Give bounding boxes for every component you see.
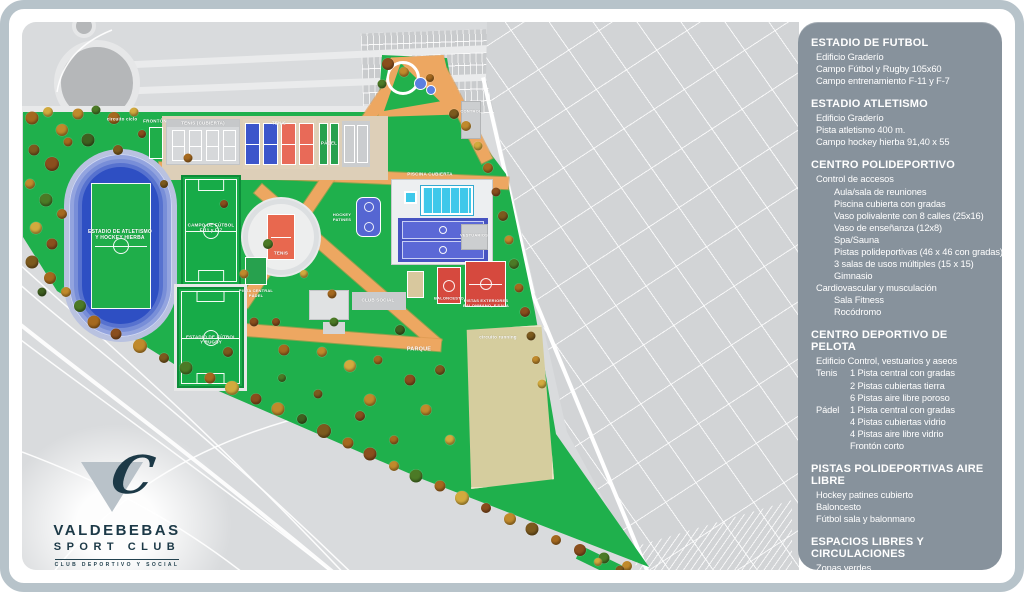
legend-item: Rocódromo — [811, 306, 994, 318]
poster-frame: circuito cicloFRONTÓNTENIS (CUBIERTA)TEN… — [0, 0, 1024, 592]
map-label: ESTADIO DE ATLETISMO Y HOCKEY HIERBA — [88, 229, 152, 241]
logo-c-glyph: C — [107, 450, 158, 502]
legend-item: Vaso de enseñanza (12x8) — [811, 222, 994, 234]
legend-item: Baloncesto — [811, 501, 994, 513]
legend-item: Pista atletismo 400 m. — [811, 124, 994, 136]
legend-section-title: ESPACIOS LIBRES Y CIRCULACIONES — [811, 536, 994, 560]
map-label: CONTROL — [460, 110, 481, 115]
map-label: HOCKEY PATINES — [333, 213, 351, 223]
legend-item: Gimnasio — [811, 270, 994, 282]
map-label: TENIS — [272, 120, 286, 125]
legend-item: Zonas verdes — [811, 562, 994, 570]
map-label: TENIS — [274, 250, 288, 255]
club-logo: C VALDEBEBAS SPORT CLUB CLUB DEPORTIVO Y… — [42, 460, 192, 570]
map-label: circuito running — [479, 334, 516, 339]
legend-item: Frontón corto — [811, 440, 994, 452]
legend-section-title: CENTRO DEPORTIVO DE PELOTA — [811, 329, 994, 353]
legend-item: Edificio Graderío — [811, 112, 994, 124]
legend-item: Vaso polivalente con 8 calles (25x16) — [811, 210, 994, 222]
legend-item: Fútbol sala y balonmano — [811, 513, 994, 525]
legend-item: 2 Pistas cubiertas tierra — [811, 380, 994, 392]
map-label: FRONTÓN — [143, 118, 167, 123]
logo-club-subtitle: SPORT CLUB — [42, 541, 192, 553]
logo-tagline: CLUB DEPORTIVO Y SOCIAL — [55, 559, 180, 568]
legend-item: Campo entrenamiento F-11 y F-7 — [811, 75, 994, 87]
legend-item: Piscina cubierta con gradas — [811, 198, 994, 210]
map-label: PISTAS EXTERIORES BALONMANO, F.SALA — [463, 299, 509, 309]
legend-item: Edificio Graderío — [811, 51, 994, 63]
legend-item: Pádel1 Pista central con gradas — [811, 404, 994, 416]
legend-panel: ESTADIO DE FUTBOLEdificio GraderíoCampo … — [798, 22, 1002, 570]
legend-item: Edificio Control, vestuarios y aseos — [811, 355, 994, 367]
map-label: CAMPO DE FÚTBOL F-11 y F-7 — [188, 223, 235, 234]
map-label: PÁDEL — [321, 140, 337, 145]
poster: circuito cicloFRONTÓNTENIS (CUBIERTA)TEN… — [0, 0, 1024, 592]
map-label: circuito ciclo — [107, 116, 138, 121]
legend-sections: ESTADIO DE FUTBOLEdificio GraderíoCampo … — [811, 37, 994, 570]
legend-item: Campo Fútbol y Rugby 105x60 — [811, 63, 994, 75]
legend-section-title: CENTRO POLIDEPORTIVO — [811, 159, 994, 171]
legend-item: 4 Pistas cubiertas vidrio — [811, 416, 994, 428]
map-label: TENIS (CUBIERTA) — [181, 120, 225, 125]
legend-item: Spa/Sauna — [811, 234, 994, 246]
legend-item: Sala Fitness — [811, 294, 994, 306]
legend-item: Campo hockey hierba 91,40 x 55 — [811, 136, 994, 148]
map-label: PARQUE — [407, 347, 431, 354]
map-label: ESTADIO DE FÚTBOL Y RUGBY — [186, 335, 236, 346]
legend-item: Control de accesos — [811, 173, 994, 185]
legend-item: 6 Pistas aire libre poroso — [811, 392, 994, 404]
map-label: BALONCESTO — [434, 297, 464, 302]
map-label: CLUB SOCIAL — [362, 297, 395, 302]
legend-section-title: PISTAS POLIDEPORTIVAS AIRE LIBRE — [811, 463, 994, 487]
logo-mark-icon: C — [42, 460, 192, 518]
legend-item: Tenis1 Pista central con gradas — [811, 367, 994, 379]
map-label: PISCINA CUBIERTA — [407, 171, 452, 176]
legend-section-title: ESTADIO DE FUTBOL — [811, 37, 994, 49]
map-label: PISTA CENTRAL PÁDEL — [239, 289, 273, 299]
legend-item: 3 salas de usos múltiples (15 x 15) — [811, 258, 994, 270]
site-plan-map: circuito cicloFRONTÓNTENIS (CUBIERTA)TEN… — [22, 22, 799, 570]
poster-content: circuito cicloFRONTÓNTENIS (CUBIERTA)TEN… — [22, 22, 1002, 570]
legend-item: Pistas polideportivas (46 x 46 con grada… — [811, 246, 994, 258]
legend-item: Hockey patines cubierto — [811, 489, 994, 501]
legend-section-title: ESTADIO ATLETISMO — [811, 98, 994, 110]
logo-club-name: VALDEBEBAS — [42, 522, 192, 539]
legend-item: 4 Pistas aire libre vidrio — [811, 428, 994, 440]
legend-item: Cardiovascular y musculación — [811, 282, 994, 294]
map-label: VESTUARIOS — [460, 234, 488, 239]
legend-item: Aula/sala de reuniones — [811, 186, 994, 198]
